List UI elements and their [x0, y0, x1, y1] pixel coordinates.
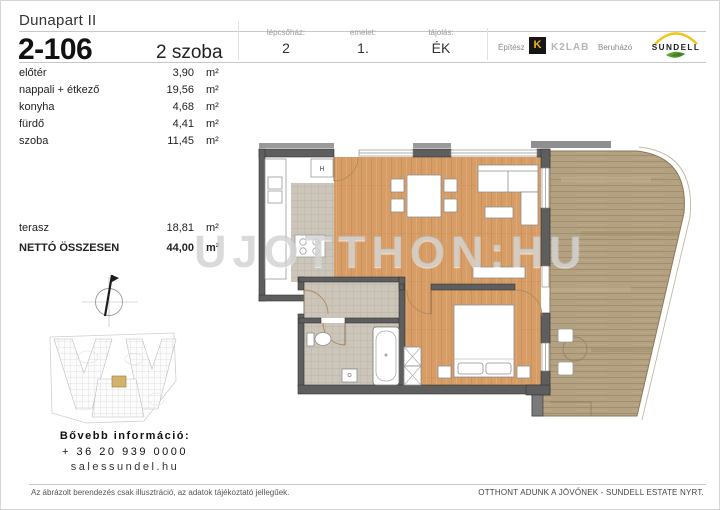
room-name: előtér — [19, 67, 137, 84]
contact-phone: + 36 20 939 0000 — [36, 446, 214, 458]
washbasin — [342, 369, 357, 382]
room-name: nappali + étkező — [19, 84, 137, 101]
orientation-value: ÉK — [401, 40, 481, 56]
toilet-tank — [307, 333, 314, 346]
fridge-label: H — [319, 166, 324, 173]
room-unit: m² — [194, 135, 224, 152]
nightstand — [517, 366, 530, 378]
compass — [76, 271, 146, 338]
terrace — [532, 147, 691, 420]
project-title: Dunapart II — [19, 12, 97, 29]
terrace-door — [542, 266, 549, 287]
floor-plan: H — [241, 137, 706, 427]
terrace-chair — [558, 362, 573, 375]
developer-label: Beruházó — [598, 43, 632, 52]
nightstand — [438, 366, 451, 378]
room-area: 11,45 — [137, 135, 194, 152]
north-flag-icon — [112, 275, 119, 282]
sink-bowl — [268, 177, 282, 189]
total-name: NETTÓ ÖSSZESEN — [19, 242, 137, 259]
site-plan — [46, 329, 180, 431]
contact-website: salessundel.hu — [36, 461, 214, 473]
total-unit: m² — [194, 242, 224, 259]
room-unit: m² — [194, 222, 224, 239]
footer-slogan: OTTHONT ADUNK A JÖVŐNEK - SUNDELL ESTATE… — [478, 488, 704, 497]
room-name: fürdő — [19, 118, 137, 135]
terrace-chair — [558, 329, 573, 342]
room-name: konyha — [19, 101, 137, 118]
floor-label: emelet: — [323, 28, 403, 37]
header-rule-bottom — [19, 62, 706, 63]
room-count: 2 szoba — [156, 42, 223, 64]
meta-orientation: tájolás: ÉK — [401, 28, 481, 56]
area-row-szoba: szoba 11,45 m² — [19, 135, 229, 152]
meta-staircase: lépcsőház: 2 — [246, 28, 326, 56]
room-unit: m² — [194, 101, 224, 118]
contact-block: Bővebb információ: + 36 20 939 0000 sale… — [36, 430, 214, 473]
header-divider-left — [238, 21, 239, 60]
entry-hall-floor — [304, 282, 399, 318]
room-unit: m² — [194, 118, 224, 135]
sundell-logo: SUNDELL — [644, 27, 708, 68]
toilet-bowl — [315, 333, 331, 346]
total-area: 44,00 — [137, 242, 194, 259]
pillow — [458, 363, 483, 374]
disclaimer-text: Az ábrázolt berendezés csak illusztráció… — [31, 488, 289, 497]
contact-heading: Bővebb információ: — [36, 430, 214, 442]
room-area: 3,90 — [137, 67, 194, 84]
stove — [295, 235, 325, 257]
pillow — [486, 363, 511, 374]
dining-chair — [391, 179, 404, 192]
room-area: 19,56 — [137, 84, 194, 101]
room-area: 18,81 — [137, 222, 194, 239]
floorplan-datasheet: Dunapart II 2-106 2 szoba lépcsőház: 2 e… — [0, 0, 720, 510]
floor-value: 1. — [323, 40, 403, 56]
room-area: 4,68 — [137, 101, 194, 118]
orientation-label: tájolás: — [401, 28, 481, 37]
tv-stand — [473, 267, 525, 278]
architect-name: K2LAB — [551, 42, 589, 53]
room-unit: m² — [194, 84, 224, 101]
footer-rule — [29, 484, 706, 485]
meta-floor: emelet: 1. — [323, 28, 403, 56]
k2lab-logo-icon: K — [529, 37, 546, 54]
area-row-terasz: terasz 18,81 m² — [19, 222, 229, 239]
dining-chair — [444, 179, 457, 192]
sink-bowl — [268, 191, 282, 203]
kitchen-tile-mat — [291, 183, 334, 282]
developer-name: SUNDELL — [652, 43, 700, 52]
header-divider-right — [487, 28, 488, 60]
room-name: szoba — [19, 135, 137, 152]
area-row-eloter: előtér 3,90 m² — [19, 67, 229, 84]
room-name: terasz — [19, 222, 137, 239]
site-unit-highlight — [112, 376, 126, 387]
area-row-total: NETTÓ ÖSSZESEN 44,00 m² — [19, 242, 229, 259]
dining-table — [407, 175, 441, 217]
area-row-konyha: konyha 4,68 m² — [19, 101, 229, 118]
room-unit: m² — [194, 67, 224, 84]
staircase-label: lépcsőház: — [246, 28, 326, 37]
area-row-nappali: nappali + étkező 19,56 m² — [19, 84, 229, 101]
coffee-table — [485, 207, 513, 218]
dining-chair — [391, 199, 404, 212]
dining-chair — [444, 199, 457, 212]
architect-label: Építész — [498, 43, 525, 52]
sofa-chaise — [521, 192, 538, 225]
staircase-value: 2 — [246, 40, 326, 56]
area-row-furdo: fürdő 4,41 m² — [19, 118, 229, 135]
room-area: 4,41 — [137, 118, 194, 135]
compass-needle-icon — [105, 275, 112, 316]
